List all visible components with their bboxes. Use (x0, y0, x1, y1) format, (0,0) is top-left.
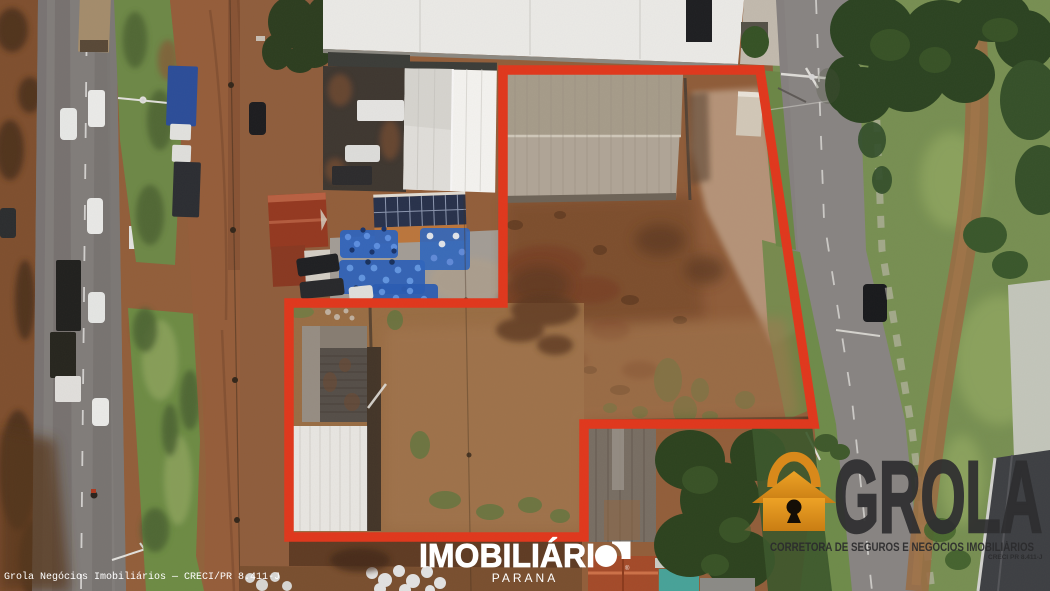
svg-text:Grola Negócios Imobiliários —: Grola Negócios Imobiliários — CRECI/PR 8… (4, 571, 280, 583)
svg-text:CRECI PR 8.411-J: CRECI PR 8.411-J (988, 554, 1043, 561)
svg-text:IMOBILIÁRI: IMOBILIÁRI (419, 537, 595, 574)
svg-text:®: ® (625, 565, 630, 572)
svg-text:CORRETORA DE SEGUROS E NEGÓCIO: CORRETORA DE SEGUROS E NEGÓCIOS IMOBILIÁ… (770, 541, 1034, 554)
svg-text:GROLA: GROLA (834, 440, 1042, 554)
svg-text:PARANA: PARANA (492, 571, 558, 585)
